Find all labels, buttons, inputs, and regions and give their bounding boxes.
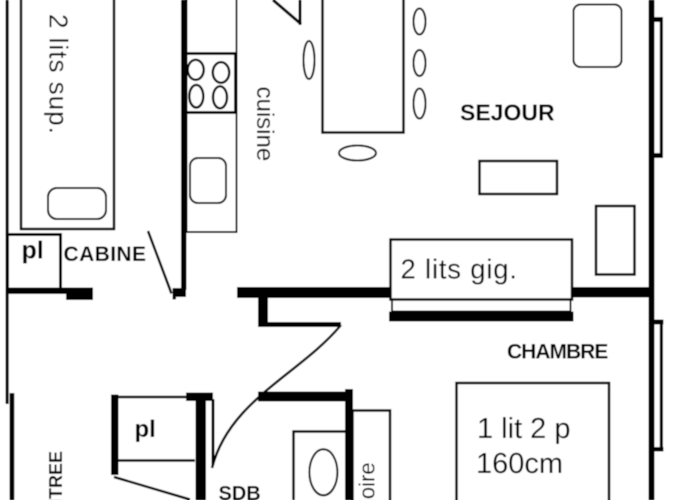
svg-text:SEJOUR: SEJOUR (460, 100, 555, 126)
svg-text:armoire: armoire (355, 462, 380, 500)
svg-text:pl: pl (135, 416, 156, 443)
svg-text:2 lits gig.: 2 lits gig. (401, 254, 518, 285)
svg-text:1 lit 2 p: 1 lit 2 p (477, 413, 571, 445)
svg-text:cuisine: cuisine (251, 87, 278, 162)
svg-text:160cm: 160cm (476, 448, 563, 480)
svg-text:CABINE: CABINE (64, 243, 147, 266)
svg-text:SDB: SDB (219, 483, 261, 500)
svg-text:CHAMBRE: CHAMBRE (507, 341, 608, 364)
svg-text:2 lits sup.: 2 lits sup. (44, 14, 74, 135)
svg-text:pl: pl (22, 237, 44, 265)
svg-text:ENTREE: ENTREE (46, 451, 66, 500)
